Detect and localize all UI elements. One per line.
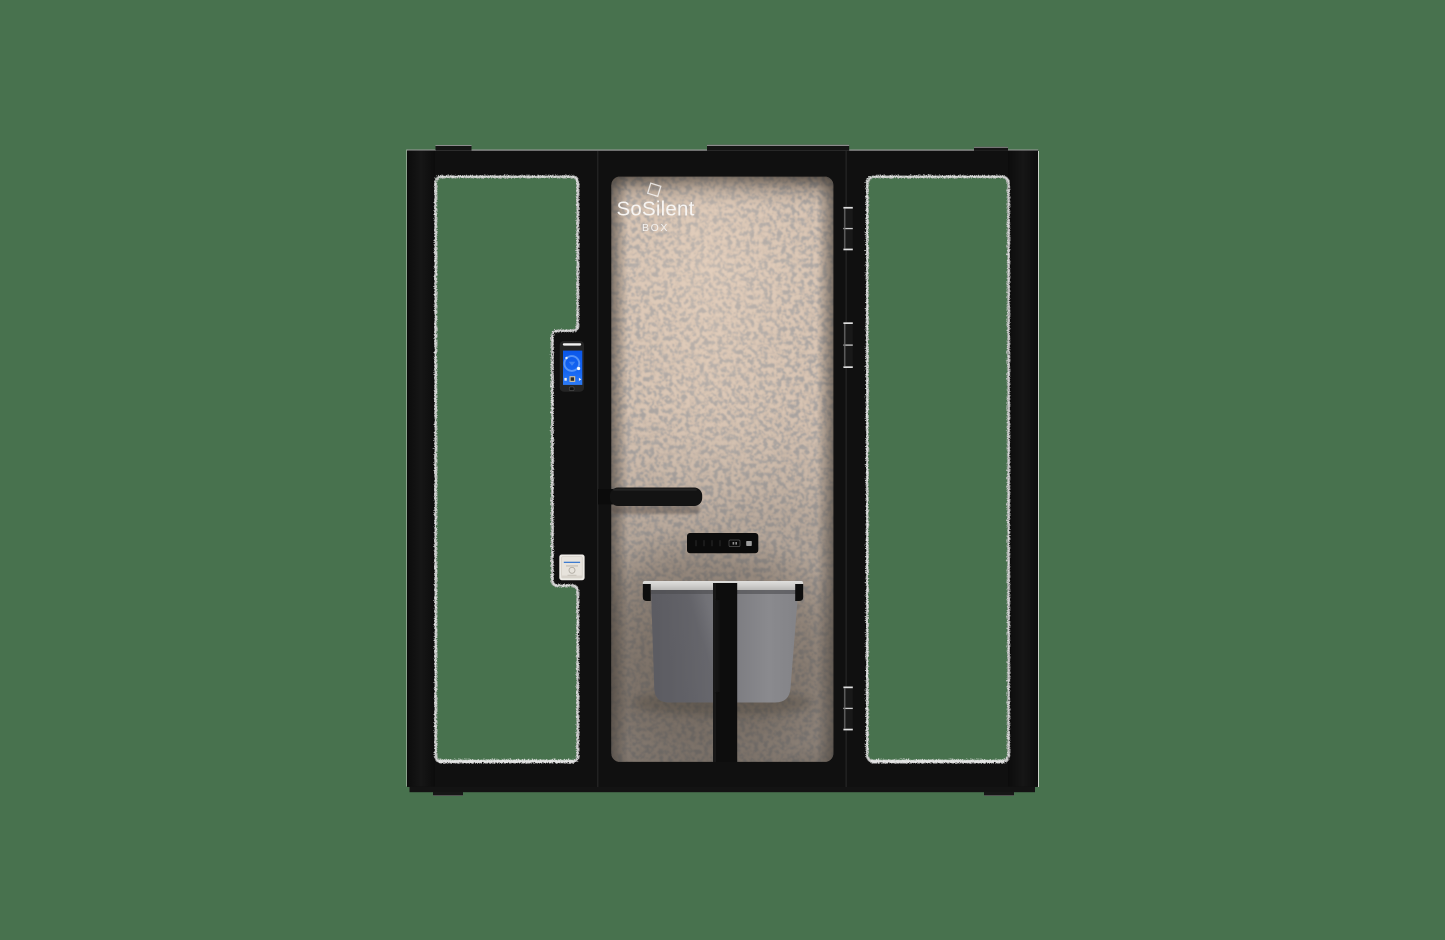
svg-text:SoSilent: SoSilent	[617, 198, 695, 221]
svg-text:BOX: BOX	[642, 222, 669, 234]
